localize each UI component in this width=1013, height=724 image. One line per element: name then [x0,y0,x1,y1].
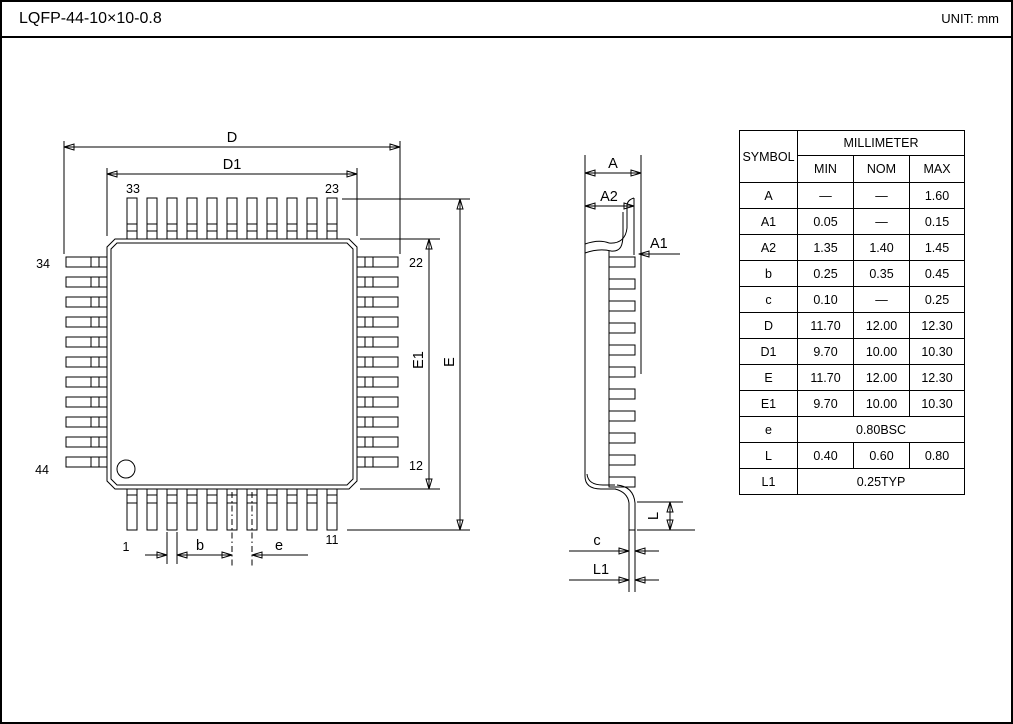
value-cell: 0.05 [798,209,854,235]
symbol-cell: E1 [740,391,798,417]
pin-lead [66,437,107,447]
value-cell: 12.00 [854,365,910,391]
datasheet-page: LQFP-44-10×10-0.8 UNIT: mm D D1 [0,0,1013,724]
pin-number-11: 11 [326,533,339,547]
value-cell: 1.60 [910,183,965,209]
pin-lead [247,198,257,239]
value-cell: 9.70 [798,339,854,365]
dimension-table: SYMBOL MILLIMETER MIN NOM MAX A — — 1.60… [739,130,965,495]
table-row: b 0.25 0.35 0.45 [740,261,965,287]
pin-lead [267,198,277,239]
table-row: D1 9.70 10.00 10.30 [740,339,965,365]
package-body-inner-outline [111,243,353,485]
side-lead-bars [609,257,635,487]
pin-lead [357,397,398,407]
value-cell: 11.70 [798,313,854,339]
pin-lead [357,297,398,307]
top-pin-row [127,198,337,239]
table-row: A — — 1.60 [740,183,965,209]
dim-L: L [637,502,695,530]
lead-bar [609,345,635,355]
table-row: c 0.10 — 0.25 [740,287,965,313]
symbol-cell: c [740,287,798,313]
pin-lead [357,457,398,467]
dim-A2: A2 [585,189,634,206]
package-body-outline [107,239,357,489]
table-row: SYMBOL MILLIMETER [740,131,965,156]
side-body-top-inner-edge [585,250,611,253]
lead-bar [609,455,635,465]
table-row: L 0.40 0.60 0.80 [740,443,965,469]
lead-bar [609,323,635,333]
pin-lead [66,317,107,327]
value-cell: 9.70 [798,391,854,417]
table-row: e 0.80BSC [740,417,965,443]
dim-label-L: L [646,512,662,520]
pin-lead [66,257,107,267]
value-cell: 10.00 [854,339,910,365]
value-cell: 12.00 [854,313,910,339]
pin-lead [66,277,107,287]
pin-lead [357,337,398,347]
pin-lead [357,417,398,427]
lead-bar [609,279,635,289]
dim-label-E: E [442,357,458,367]
dim-label-A2: A2 [600,189,618,205]
value-cell: 10.00 [854,391,910,417]
dim-D: D [64,130,400,254]
side-top-lead [609,198,634,255]
table-row: E1 9.70 10.00 10.30 [740,391,965,417]
pin-lead [187,198,197,239]
pin-lead [66,417,107,427]
side-view: A A2 A1 L c [569,155,695,592]
symbol-cell: b [740,261,798,287]
pin-number-23: 23 [325,182,339,196]
side-body-back-edge [585,155,616,489]
value-cell: — [854,183,910,209]
value-cell: 0.25TYP [798,469,965,495]
pin-number-1: 1 [123,540,130,554]
symbol-cell: L1 [740,469,798,495]
unit-header-cell: MILLIMETER [798,131,965,156]
pin-lead [66,357,107,367]
dim-label-e: e [275,538,283,554]
lead-bar [609,367,635,377]
lead-bar [609,389,635,399]
dim-label-A: A [608,156,618,172]
dim-b: b [145,532,217,564]
dim-label-E1: E1 [411,351,427,369]
pin-lead [147,198,157,239]
pin-lead [66,297,107,307]
value-cell: — [854,287,910,313]
value-cell: 0.40 [798,443,854,469]
value-cell: 0.80BSC [798,417,965,443]
dim-label-D: D [227,130,237,146]
lead-bar [609,301,635,311]
value-cell: 11.70 [798,365,854,391]
value-cell: — [798,183,854,209]
pin-lead [287,198,297,239]
pin-number-34: 34 [36,257,50,271]
value-cell: 0.15 [910,209,965,235]
symbol-cell: e [740,417,798,443]
symbol-cell: A2 [740,235,798,261]
value-cell: 0.35 [854,261,910,287]
min-header-cell: MIN [798,156,854,183]
dim-label-b: b [196,538,204,554]
value-cell: 1.40 [854,235,910,261]
side-body-top-edge [585,241,609,244]
pin-number-12: 12 [409,459,423,473]
symbol-cell: A1 [740,209,798,235]
value-cell: 0.80 [910,443,965,469]
pin-lead [357,377,398,387]
dim-label-L1: L1 [593,562,609,578]
table-row: A2 1.35 1.40 1.45 [740,235,965,261]
value-cell: 1.35 [798,235,854,261]
pin-lead [127,198,137,239]
side-bottom-lead [615,485,635,592]
symbol-cell: A [740,183,798,209]
value-cell: 10.30 [910,339,965,365]
pin-lead [307,198,317,239]
value-cell: 0.10 [798,287,854,313]
lead-bar [609,411,635,421]
dim-label-D1: D1 [223,157,242,173]
value-cell: 12.30 [910,313,965,339]
dim-label-A1: A1 [650,236,668,252]
value-cell: 1.45 [910,235,965,261]
symbol-cell: D1 [740,339,798,365]
value-cell: 0.25 [910,287,965,313]
right-pin-row [357,257,398,467]
pin-lead [66,377,107,387]
value-cell: — [854,209,910,235]
pin-lead [327,198,337,239]
dim-L1: L1 [569,562,659,580]
dim-c: c [569,533,659,551]
table-row: E 11.70 12.00 12.30 [740,365,965,391]
dim-E: E [342,199,470,530]
max-header-cell: MAX [910,156,965,183]
pin-lead [357,317,398,327]
lead-bar [609,257,635,267]
pin-lead [227,198,237,239]
table-row: L1 0.25TYP [740,469,965,495]
table-row: D 11.70 12.00 12.30 [740,313,965,339]
value-cell: 0.60 [854,443,910,469]
pin-lead [167,198,177,239]
pin-number-33: 33 [126,182,140,196]
symbol-header-cell: SYMBOL [740,131,798,183]
pin-lead [357,357,398,367]
pin-lead [357,257,398,267]
symbol-cell: E [740,365,798,391]
value-cell: 10.30 [910,391,965,417]
table-row: A1 0.05 — 0.15 [740,209,965,235]
pin-lead [66,337,107,347]
lead-bar [609,433,635,443]
value-cell: 12.30 [910,365,965,391]
dim-A1: A1 [639,236,680,254]
pin1-indicator-dot [117,460,135,478]
side-body-bottom-inner-edge [587,474,615,485]
pin-lead [66,397,107,407]
pin-number-44: 44 [35,463,49,477]
symbol-cell: D [740,313,798,339]
left-pin-row [66,257,107,467]
pin-lead [207,198,217,239]
dim-A: A [585,155,641,374]
top-view: D D1 E E1 [35,130,470,568]
symbol-cell: L [740,443,798,469]
value-cell: 0.45 [910,261,965,287]
pin-lead [357,277,398,287]
value-cell: 0.25 [798,261,854,287]
pin-lead [357,437,398,447]
dim-label-c: c [593,533,600,549]
pin-number-22: 22 [409,256,423,270]
nom-header-cell: NOM [854,156,910,183]
pin-lead [66,457,107,467]
